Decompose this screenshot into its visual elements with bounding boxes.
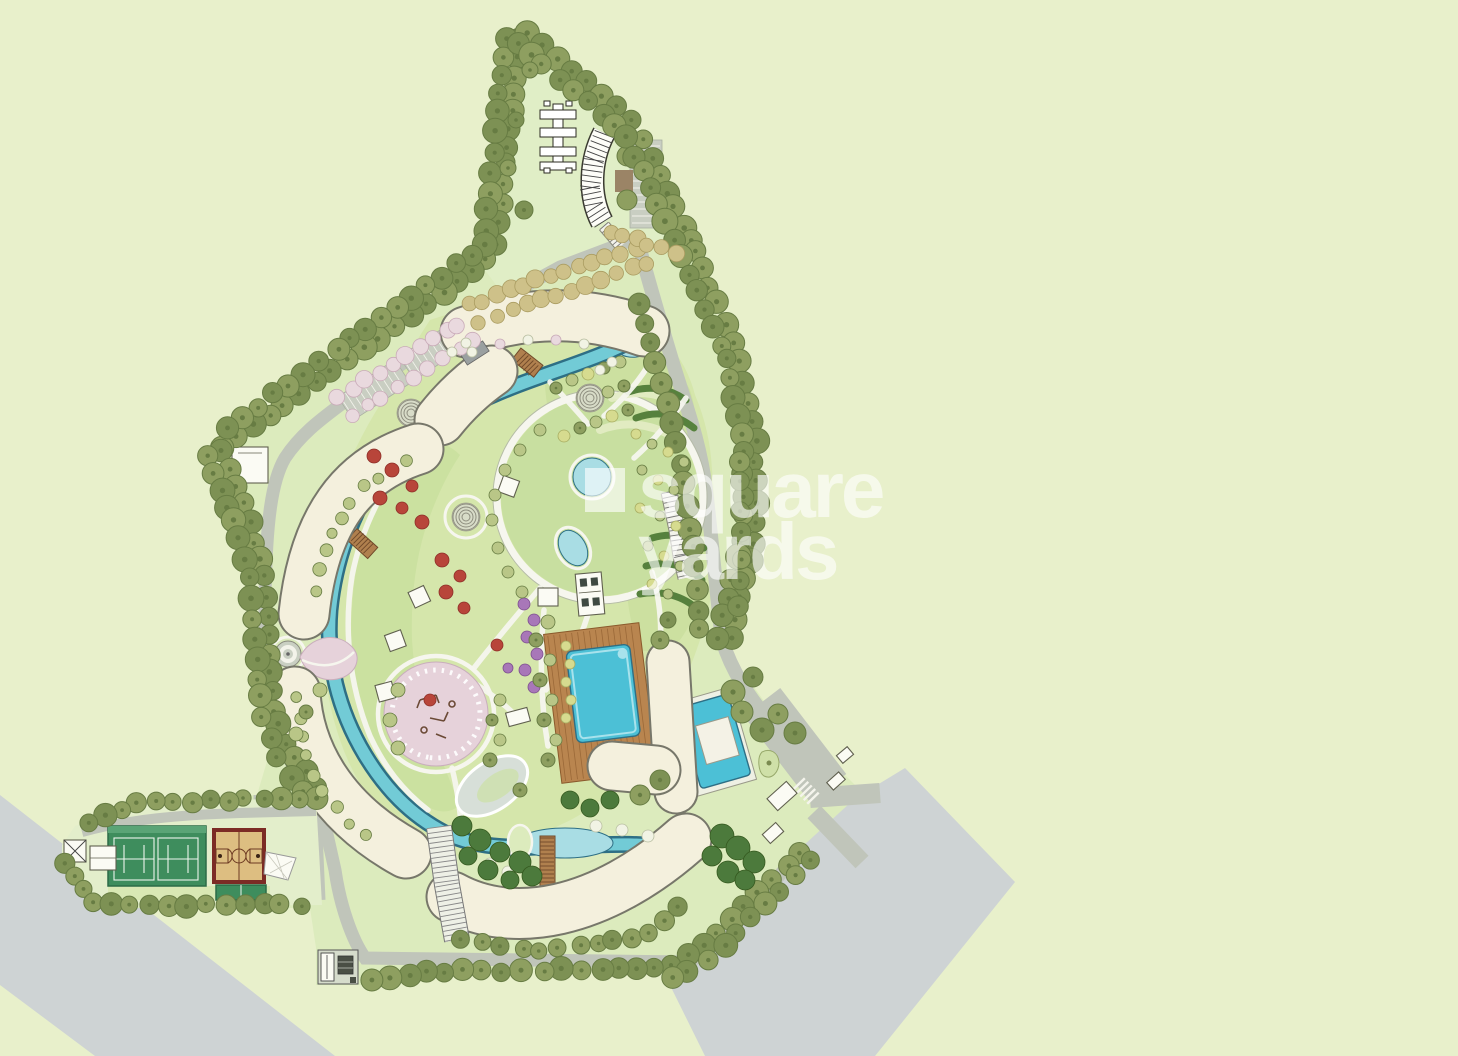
courtyard-patch (615, 170, 633, 192)
watermark-line2: yards (638, 507, 837, 596)
site-plan-image: square yards (0, 0, 1458, 1056)
exit-road-east (810, 793, 880, 798)
utility-block-south (318, 950, 358, 984)
tower-footprint-north (540, 101, 576, 173)
gym-pavilion (575, 572, 605, 616)
square-glyph (585, 468, 625, 512)
basketball-court (212, 828, 266, 884)
master-plan-drawing: square yards (0, 0, 1458, 1056)
tennis-courts (108, 826, 206, 886)
swimming-pool (566, 644, 641, 743)
